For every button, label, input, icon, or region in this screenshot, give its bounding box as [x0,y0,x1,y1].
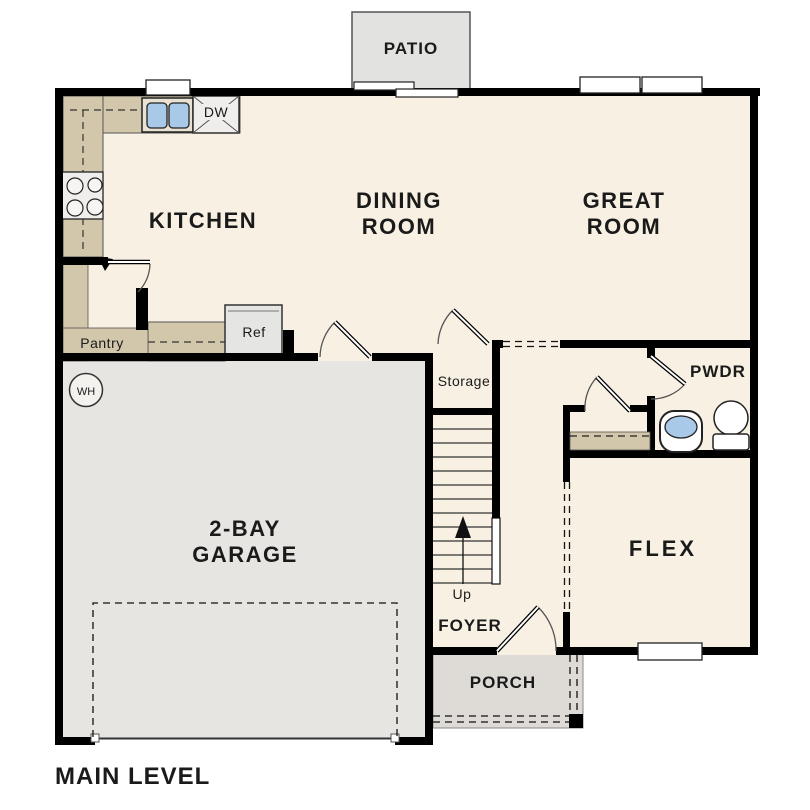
burner-2 [88,178,102,192]
pwdr-sink [660,411,702,452]
up-label: Up [453,586,472,602]
wall-bottom-foyer [425,647,497,655]
closet-shelf [570,432,650,450]
wall-pantry-jamb [136,288,148,330]
dining-label-line1: DINING [356,188,442,213]
burner-4 [87,199,103,215]
wall-stair-right [492,340,500,518]
garage-door-block-right [391,734,399,742]
plan-title: MAIN LEVEL [55,763,210,790]
foyer-label: FOYER [438,616,502,635]
toilet-bowl [714,401,748,435]
flex-label: FLEX [629,536,697,561]
great-room-window-2 [642,77,702,93]
kitchen-sink [142,98,193,132]
wall-ref-stub [283,330,294,361]
wall-kitchen-garage-left [55,353,318,361]
sink-basin-left [147,103,167,128]
great-room-window-1 [580,77,640,93]
wall-divider-left [492,340,503,348]
great-label-line2: ROOM [587,214,661,239]
floor-plan-page: PATIO KITCHEN DINING ROOM GREAT ROOM 2-B… [0,0,810,810]
great-label-line1: GREAT [583,188,666,213]
slider-panel-front [396,89,458,97]
wall-pwdr-bottom [563,450,758,458]
wall-flex-left-top [563,405,570,482]
garage-label-line1: 2-BAY [209,516,281,541]
garage-door-block-left [91,734,99,742]
wall-storage-bottom [425,408,500,415]
pwdr-sink-basin [665,416,697,438]
dw-label: DW [204,104,229,120]
stove [62,172,103,219]
storage-label: Storage [438,373,491,389]
pwdr-label: PWDR [690,362,746,381]
wall-garage-bottom-left [55,737,95,745]
burner-1 [67,178,83,194]
wall-kitchen-garage-right [372,353,433,361]
wall-divider-right [560,340,758,348]
patio-label: PATIO [384,39,438,58]
kitchen-label: KITCHEN [149,208,257,233]
burner-3 [67,200,83,216]
kitchen-window [146,80,190,95]
wall-right [750,88,758,655]
garage-label-line2: GARAGE [192,542,298,567]
dining-label-line2: ROOM [362,214,436,239]
toilet-tank [713,434,749,450]
porch-label: PORCH [470,673,536,692]
floor-plan-drawing: PATIO KITCHEN DINING ROOM GREAT ROOM 2-B… [0,0,810,810]
flex-window [638,643,702,660]
stair-rail [492,518,500,584]
wall-left [55,88,63,745]
wall-flex-left-bottom [563,612,570,655]
sink-basin-right [169,103,189,128]
pantry-label: Pantry [80,335,123,351]
wall-closet-top-right [630,405,647,412]
wh-label: WH [77,386,95,398]
porch-post [569,714,583,728]
front-door-threshold [497,647,556,655]
toilet [713,401,749,450]
ref-label: Ref [242,324,265,340]
